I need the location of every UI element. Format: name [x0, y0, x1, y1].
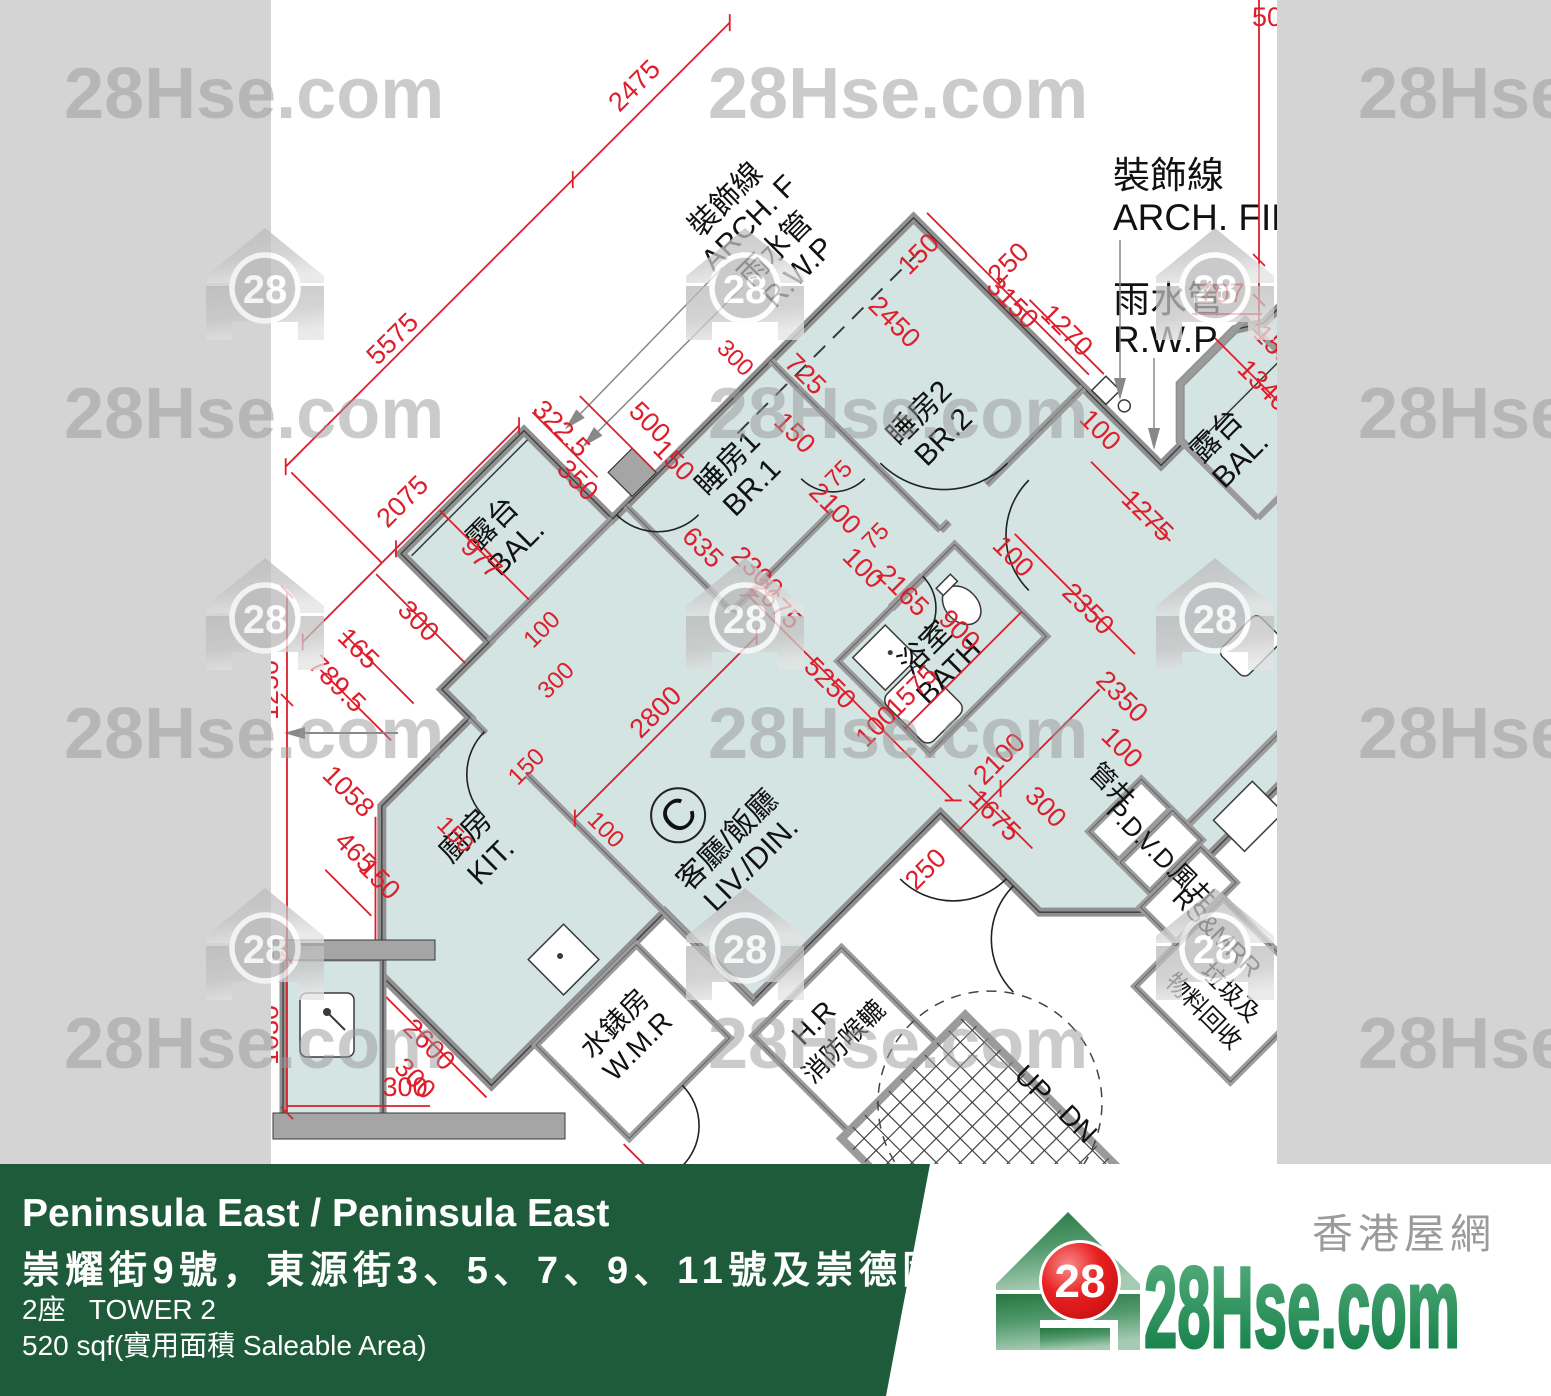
svg-text:300: 300 [392, 594, 445, 647]
svg-text:Peninsula East / Peninsula Eas: Peninsula East / Peninsula East [22, 1192, 609, 1235]
svg-text:28: 28 [243, 268, 288, 312]
svg-text:28Hse.com: 28Hse.com [708, 1004, 1088, 1084]
svg-text:28: 28 [243, 928, 288, 972]
svg-text:28: 28 [723, 598, 768, 642]
svg-text:28Hse.com: 28Hse.com [708, 374, 1088, 454]
svg-text:28Hse.com: 28Hse.com [1358, 694, 1551, 774]
svg-text:28Hse.com: 28Hse.com [64, 1004, 444, 1084]
svg-text:香港屋網: 香港屋網 [1312, 1211, 1496, 1257]
svg-text:28: 28 [723, 928, 768, 972]
svg-text:28Hse.com: 28Hse.com [64, 694, 444, 774]
svg-text:28: 28 [723, 268, 768, 312]
svg-text:28Hse.com: 28Hse.com [64, 374, 444, 454]
svg-text:2座 TOWER 2: 2座 TOWER 2 [22, 1294, 216, 1325]
svg-text:28Hse.com: 28Hse.com [708, 54, 1088, 134]
svg-text:28: 28 [243, 598, 288, 642]
svg-text:28Hse.com: 28Hse.com [1358, 54, 1551, 134]
svg-text:28Hse.com: 28Hse.com [1144, 1244, 1460, 1372]
svg-text:28Hse.com: 28Hse.com [1358, 1004, 1551, 1084]
svg-text:28Hse.com: 28Hse.com [64, 54, 444, 134]
svg-text:28Hse.com: 28Hse.com [1358, 374, 1551, 454]
svg-text:2475: 2475 [602, 54, 666, 118]
svg-text:28: 28 [1193, 928, 1238, 972]
svg-text:裝飾線: 裝飾線 [1113, 155, 1224, 196]
svg-text:520 sqf(實用面積 Saleable Area): 520 sqf(實用面積 Saleable Area) [22, 1330, 427, 1361]
svg-text:28: 28 [1193, 598, 1238, 642]
svg-text:28: 28 [1054, 1255, 1105, 1307]
svg-text:28Hse.com: 28Hse.com [708, 694, 1088, 774]
svg-text:崇耀街9號，東源街3、5、7、9、11號及崇德圍3號: 崇耀街9號，東源街3、5、7、9、11號及崇德圍3號 [22, 1250, 1016, 1292]
svg-text:28: 28 [1193, 268, 1238, 312]
